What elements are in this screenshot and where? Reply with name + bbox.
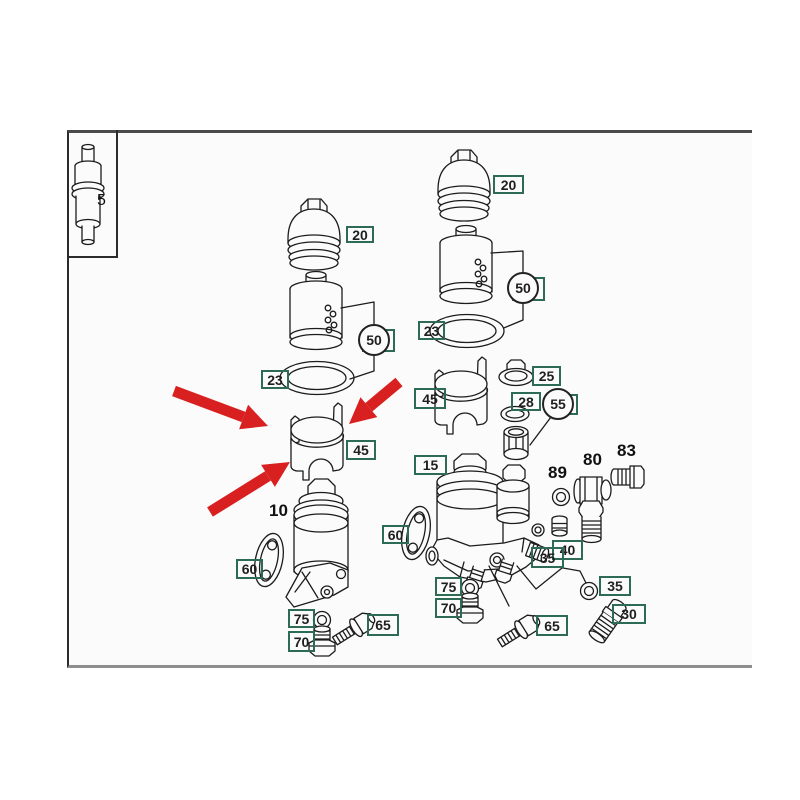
part-label-45-right: 45 — [414, 388, 446, 409]
part-label-20-left: 20 — [346, 226, 374, 243]
part-label-35-b: 35 — [599, 576, 631, 596]
part-label-23-right: 23 — [418, 321, 445, 340]
part-label-75-left: 75 — [288, 609, 315, 628]
seal-ring-40 — [532, 524, 544, 536]
part-label-15: 15 — [414, 455, 447, 475]
red-arrow-upper-left — [174, 391, 268, 429]
part-label-65-right: 65 — [536, 615, 568, 636]
part-label-65-left: 65 — [367, 614, 399, 636]
plug-below-89 — [552, 516, 567, 536]
part-label-60-right: 60 — [382, 525, 409, 544]
part-label-89: 89 — [548, 463, 567, 483]
part-label-45-left: 45 — [346, 440, 376, 460]
part-label-50-left: 50 — [358, 324, 390, 356]
filter-cap-20-left — [288, 199, 340, 270]
filter-cap-20-right — [438, 150, 490, 221]
part-label-25: 25 — [532, 366, 561, 386]
part-label-55: 55 — [542, 388, 574, 420]
part-label-60-left: 60 — [236, 559, 263, 579]
part-label-35-a: 35 — [531, 547, 564, 568]
red-arrow-upper-right — [349, 382, 399, 424]
leader-line-55 — [530, 417, 551, 445]
part-label-75-right: 75 — [435, 577, 462, 596]
part-label-50-right: 50 — [507, 272, 539, 304]
part-label-80: 80 — [583, 450, 602, 470]
filter-element-50-left — [290, 272, 342, 350]
check-valve-80 — [574, 477, 611, 543]
part-label-20-right: 20 — [493, 175, 524, 194]
part-label-70-right: 70 — [435, 598, 462, 618]
cap-25 — [499, 360, 533, 386]
part-label-23-left: 23 — [261, 370, 289, 389]
part-label-30: 30 — [612, 604, 646, 624]
part-label-28: 28 — [511, 392, 541, 411]
part-label-5: 5 — [97, 192, 106, 210]
oring-23-left — [280, 362, 354, 395]
parts-diagram-page: 20 20 23 23 45 45 25 28 15 60 60 75 70 6… — [0, 0, 800, 800]
part-label-70-left: 70 — [288, 631, 315, 652]
part-label-83: 83 — [617, 441, 636, 461]
screw-83 — [611, 466, 644, 488]
part-label-10: 10 — [269, 501, 288, 521]
diagram-artwork — [0, 0, 800, 800]
guide-cup-45-left — [291, 403, 343, 480]
filter-element-50-right — [440, 226, 492, 304]
valve-insert-55 — [504, 427, 528, 460]
oring-89 — [553, 489, 570, 506]
washer-35 — [581, 583, 598, 600]
oil-filter-housing-10 — [286, 479, 348, 607]
